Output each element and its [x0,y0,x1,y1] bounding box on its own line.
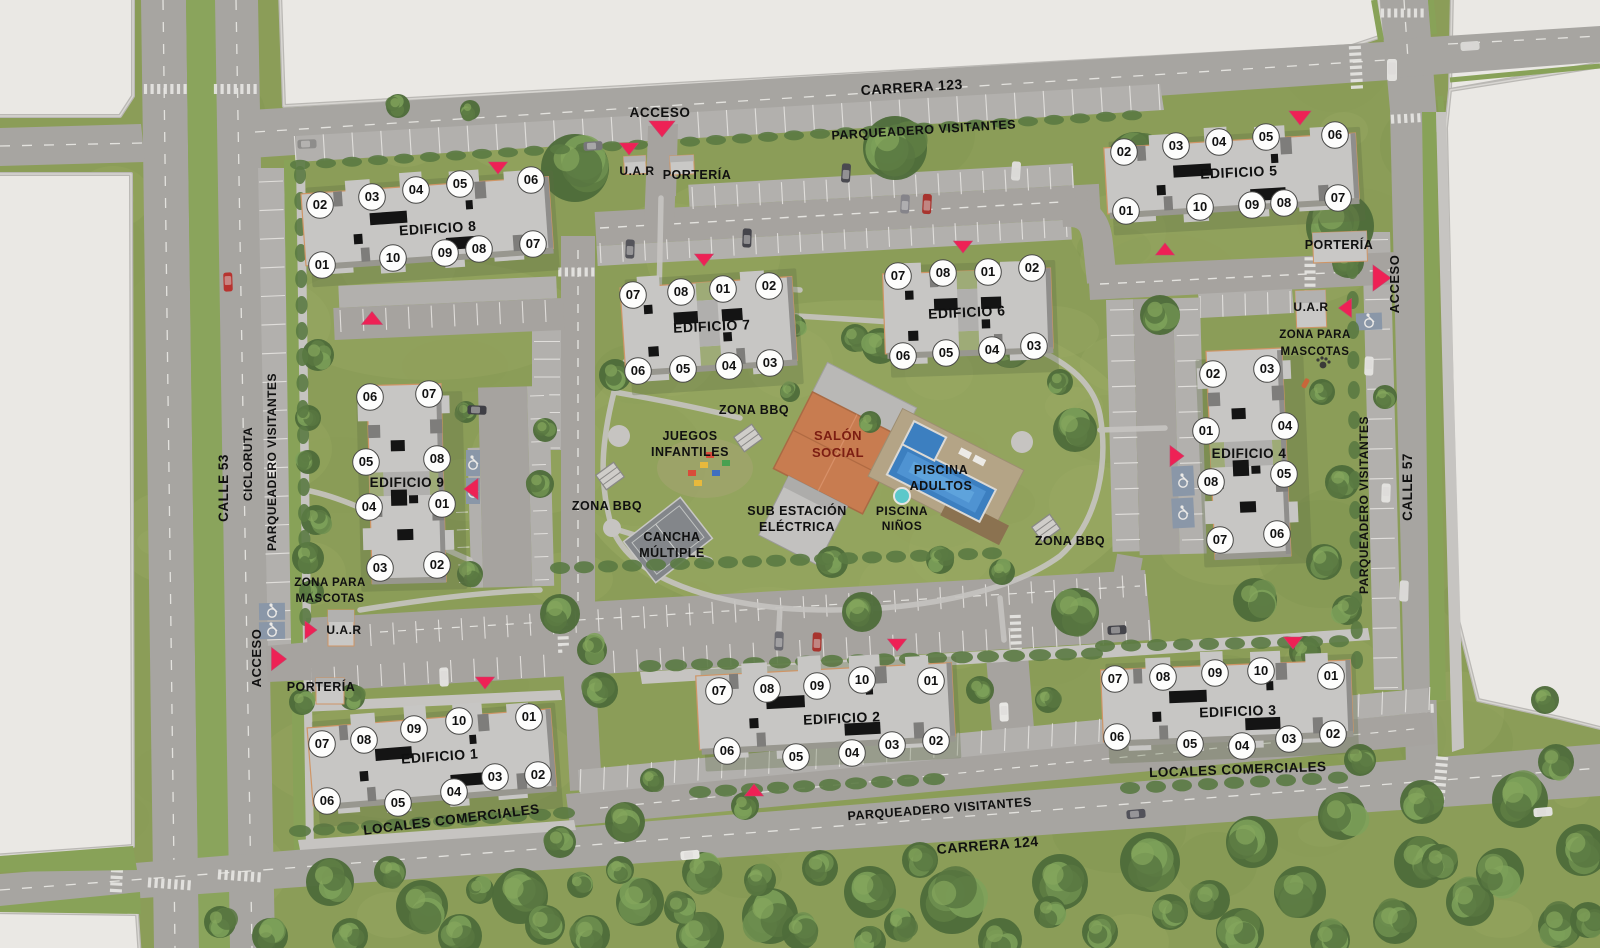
svg-text:09: 09 [1245,197,1259,212]
svg-text:05: 05 [391,795,405,810]
svg-text:04: 04 [447,784,462,799]
svg-text:10: 10 [386,250,400,265]
svg-text:03: 03 [1282,731,1296,746]
svg-text:SOCIAL: SOCIAL [812,445,864,460]
svg-text:MÚLTIPLE: MÚLTIPLE [639,545,705,560]
svg-text:05: 05 [1277,466,1291,481]
svg-text:02: 02 [313,197,327,212]
svg-text:09: 09 [438,245,452,260]
svg-text:PARQUEADERO VISITANTES: PARQUEADERO VISITANTES [265,373,279,551]
svg-text:05: 05 [789,749,803,764]
svg-text:09: 09 [407,721,421,736]
svg-text:04: 04 [985,342,1000,357]
svg-text:06: 06 [631,363,645,378]
svg-text:02: 02 [1206,366,1220,381]
svg-text:PISCINA: PISCINA [914,463,968,477]
svg-text:01: 01 [315,257,329,272]
svg-text:07: 07 [891,268,905,283]
svg-text:ACCESO: ACCESO [249,629,264,688]
svg-text:EDIFICIO 7: EDIFICIO 7 [673,316,751,335]
svg-text:03: 03 [1027,338,1041,353]
svg-text:ACCESO: ACCESO [1387,255,1402,314]
svg-text:05: 05 [359,454,373,469]
svg-text:02: 02 [1326,726,1340,741]
svg-text:03: 03 [373,560,387,575]
svg-text:EDIFICIO 3: EDIFICIO 3 [1199,702,1277,721]
svg-text:05: 05 [1183,736,1197,751]
svg-text:04: 04 [362,499,377,514]
svg-text:CANCHA: CANCHA [643,530,700,544]
svg-text:02: 02 [531,767,545,782]
svg-text:07: 07 [1331,190,1345,205]
svg-text:02: 02 [1025,260,1039,275]
svg-text:CICLORUTA: CICLORUTA [241,427,255,501]
svg-text:EDIFICIO 6: EDIFICIO 6 [928,302,1006,321]
svg-text:ZONA BBQ: ZONA BBQ [1035,534,1105,548]
svg-text:03: 03 [1169,138,1183,153]
svg-text:ADULTOS: ADULTOS [910,479,973,493]
svg-text:07: 07 [712,683,726,698]
svg-text:05: 05 [453,176,467,191]
svg-text:08: 08 [1277,195,1291,210]
svg-text:EDIFICIO 5: EDIFICIO 5 [1200,162,1278,181]
svg-text:PORTERÍA: PORTERÍA [1305,237,1374,252]
svg-text:CALLE 57: CALLE 57 [1400,453,1415,521]
svg-text:08: 08 [1156,669,1170,684]
svg-text:U.A.R: U.A.R [619,164,654,178]
svg-text:04: 04 [1235,738,1250,753]
svg-text:07: 07 [1108,671,1122,686]
svg-text:01: 01 [1119,203,1133,218]
svg-text:07: 07 [422,386,436,401]
svg-text:03: 03 [1260,361,1274,376]
svg-text:EDIFICIO 9: EDIFICIO 9 [370,475,445,490]
svg-text:SUB ESTACIÓN: SUB ESTACIÓN [747,503,847,518]
svg-text:04: 04 [1278,418,1293,433]
svg-text:08: 08 [760,681,774,696]
svg-text:PARQUEADERO VISITANTES: PARQUEADERO VISITANTES [1357,416,1371,594]
svg-text:08: 08 [357,732,371,747]
svg-text:U.A.R: U.A.R [1293,300,1328,314]
svg-text:02: 02 [430,557,444,572]
svg-text:08: 08 [936,265,950,280]
svg-text:05: 05 [676,361,690,376]
svg-text:ZONA BBQ: ZONA BBQ [572,499,642,513]
svg-text:03: 03 [365,189,379,204]
svg-text:NIÑOS: NIÑOS [882,518,923,533]
svg-text:ZONA PARA: ZONA PARA [1279,329,1351,341]
svg-text:08: 08 [472,241,486,256]
svg-text:01: 01 [981,264,995,279]
svg-text:10: 10 [855,672,869,687]
svg-text:07: 07 [315,736,329,751]
svg-text:U.A.R: U.A.R [326,623,361,637]
svg-text:08: 08 [1204,474,1218,489]
svg-text:JUEGOS: JUEGOS [662,429,717,443]
svg-text:01: 01 [716,281,730,296]
svg-text:MASCOTAS: MASCOTAS [1281,346,1350,358]
svg-text:03: 03 [885,737,899,752]
svg-text:03: 03 [763,355,777,370]
svg-text:01: 01 [435,496,449,511]
svg-text:02: 02 [762,278,776,293]
svg-text:PORTERÍA: PORTERÍA [287,679,356,694]
svg-text:PISCINA: PISCINA [876,504,928,518]
svg-text:10: 10 [1193,199,1207,214]
svg-text:04: 04 [1212,134,1227,149]
svg-text:04: 04 [409,182,424,197]
svg-text:10: 10 [452,713,466,728]
svg-text:03: 03 [488,769,502,784]
svg-text:10: 10 [1254,663,1268,678]
svg-text:09: 09 [1208,665,1222,680]
svg-text:06: 06 [524,172,538,187]
svg-text:SALÓN: SALÓN [814,428,862,443]
svg-text:07: 07 [526,236,540,251]
svg-text:06: 06 [720,743,734,758]
svg-text:05: 05 [939,345,953,360]
svg-text:06: 06 [896,348,910,363]
svg-text:ELÉCTRICA: ELÉCTRICA [759,519,835,534]
svg-text:09: 09 [810,678,824,693]
svg-text:06: 06 [1110,729,1124,744]
svg-text:08: 08 [430,451,444,466]
svg-text:07: 07 [626,287,640,302]
svg-text:EDIFICIO 2: EDIFICIO 2 [803,708,881,727]
svg-text:02: 02 [1117,144,1131,159]
svg-text:08: 08 [674,284,688,299]
svg-text:EDIFICIO 4: EDIFICIO 4 [1212,446,1287,461]
svg-text:01: 01 [924,673,938,688]
svg-text:04: 04 [722,358,737,373]
svg-text:05: 05 [1259,129,1273,144]
svg-text:MASCOTAS: MASCOTAS [296,593,365,605]
svg-text:ACCESO: ACCESO [630,105,691,120]
svg-text:06: 06 [320,793,334,808]
svg-text:CALLE 53: CALLE 53 [216,454,231,522]
svg-text:INFANTILES: INFANTILES [651,445,729,459]
svg-text:07: 07 [1213,532,1227,547]
svg-text:06: 06 [363,389,377,404]
svg-text:ZONA PARA: ZONA PARA [294,577,366,589]
svg-text:04: 04 [845,745,860,760]
svg-text:01: 01 [1324,668,1338,683]
svg-text:02: 02 [929,733,943,748]
svg-text:06: 06 [1328,127,1342,142]
svg-text:ZONA BBQ: ZONA BBQ [719,403,789,417]
svg-text:PORTERÍA: PORTERÍA [663,167,732,182]
svg-text:01: 01 [1199,423,1213,438]
svg-text:01: 01 [522,709,536,724]
svg-text:06: 06 [1270,526,1284,541]
